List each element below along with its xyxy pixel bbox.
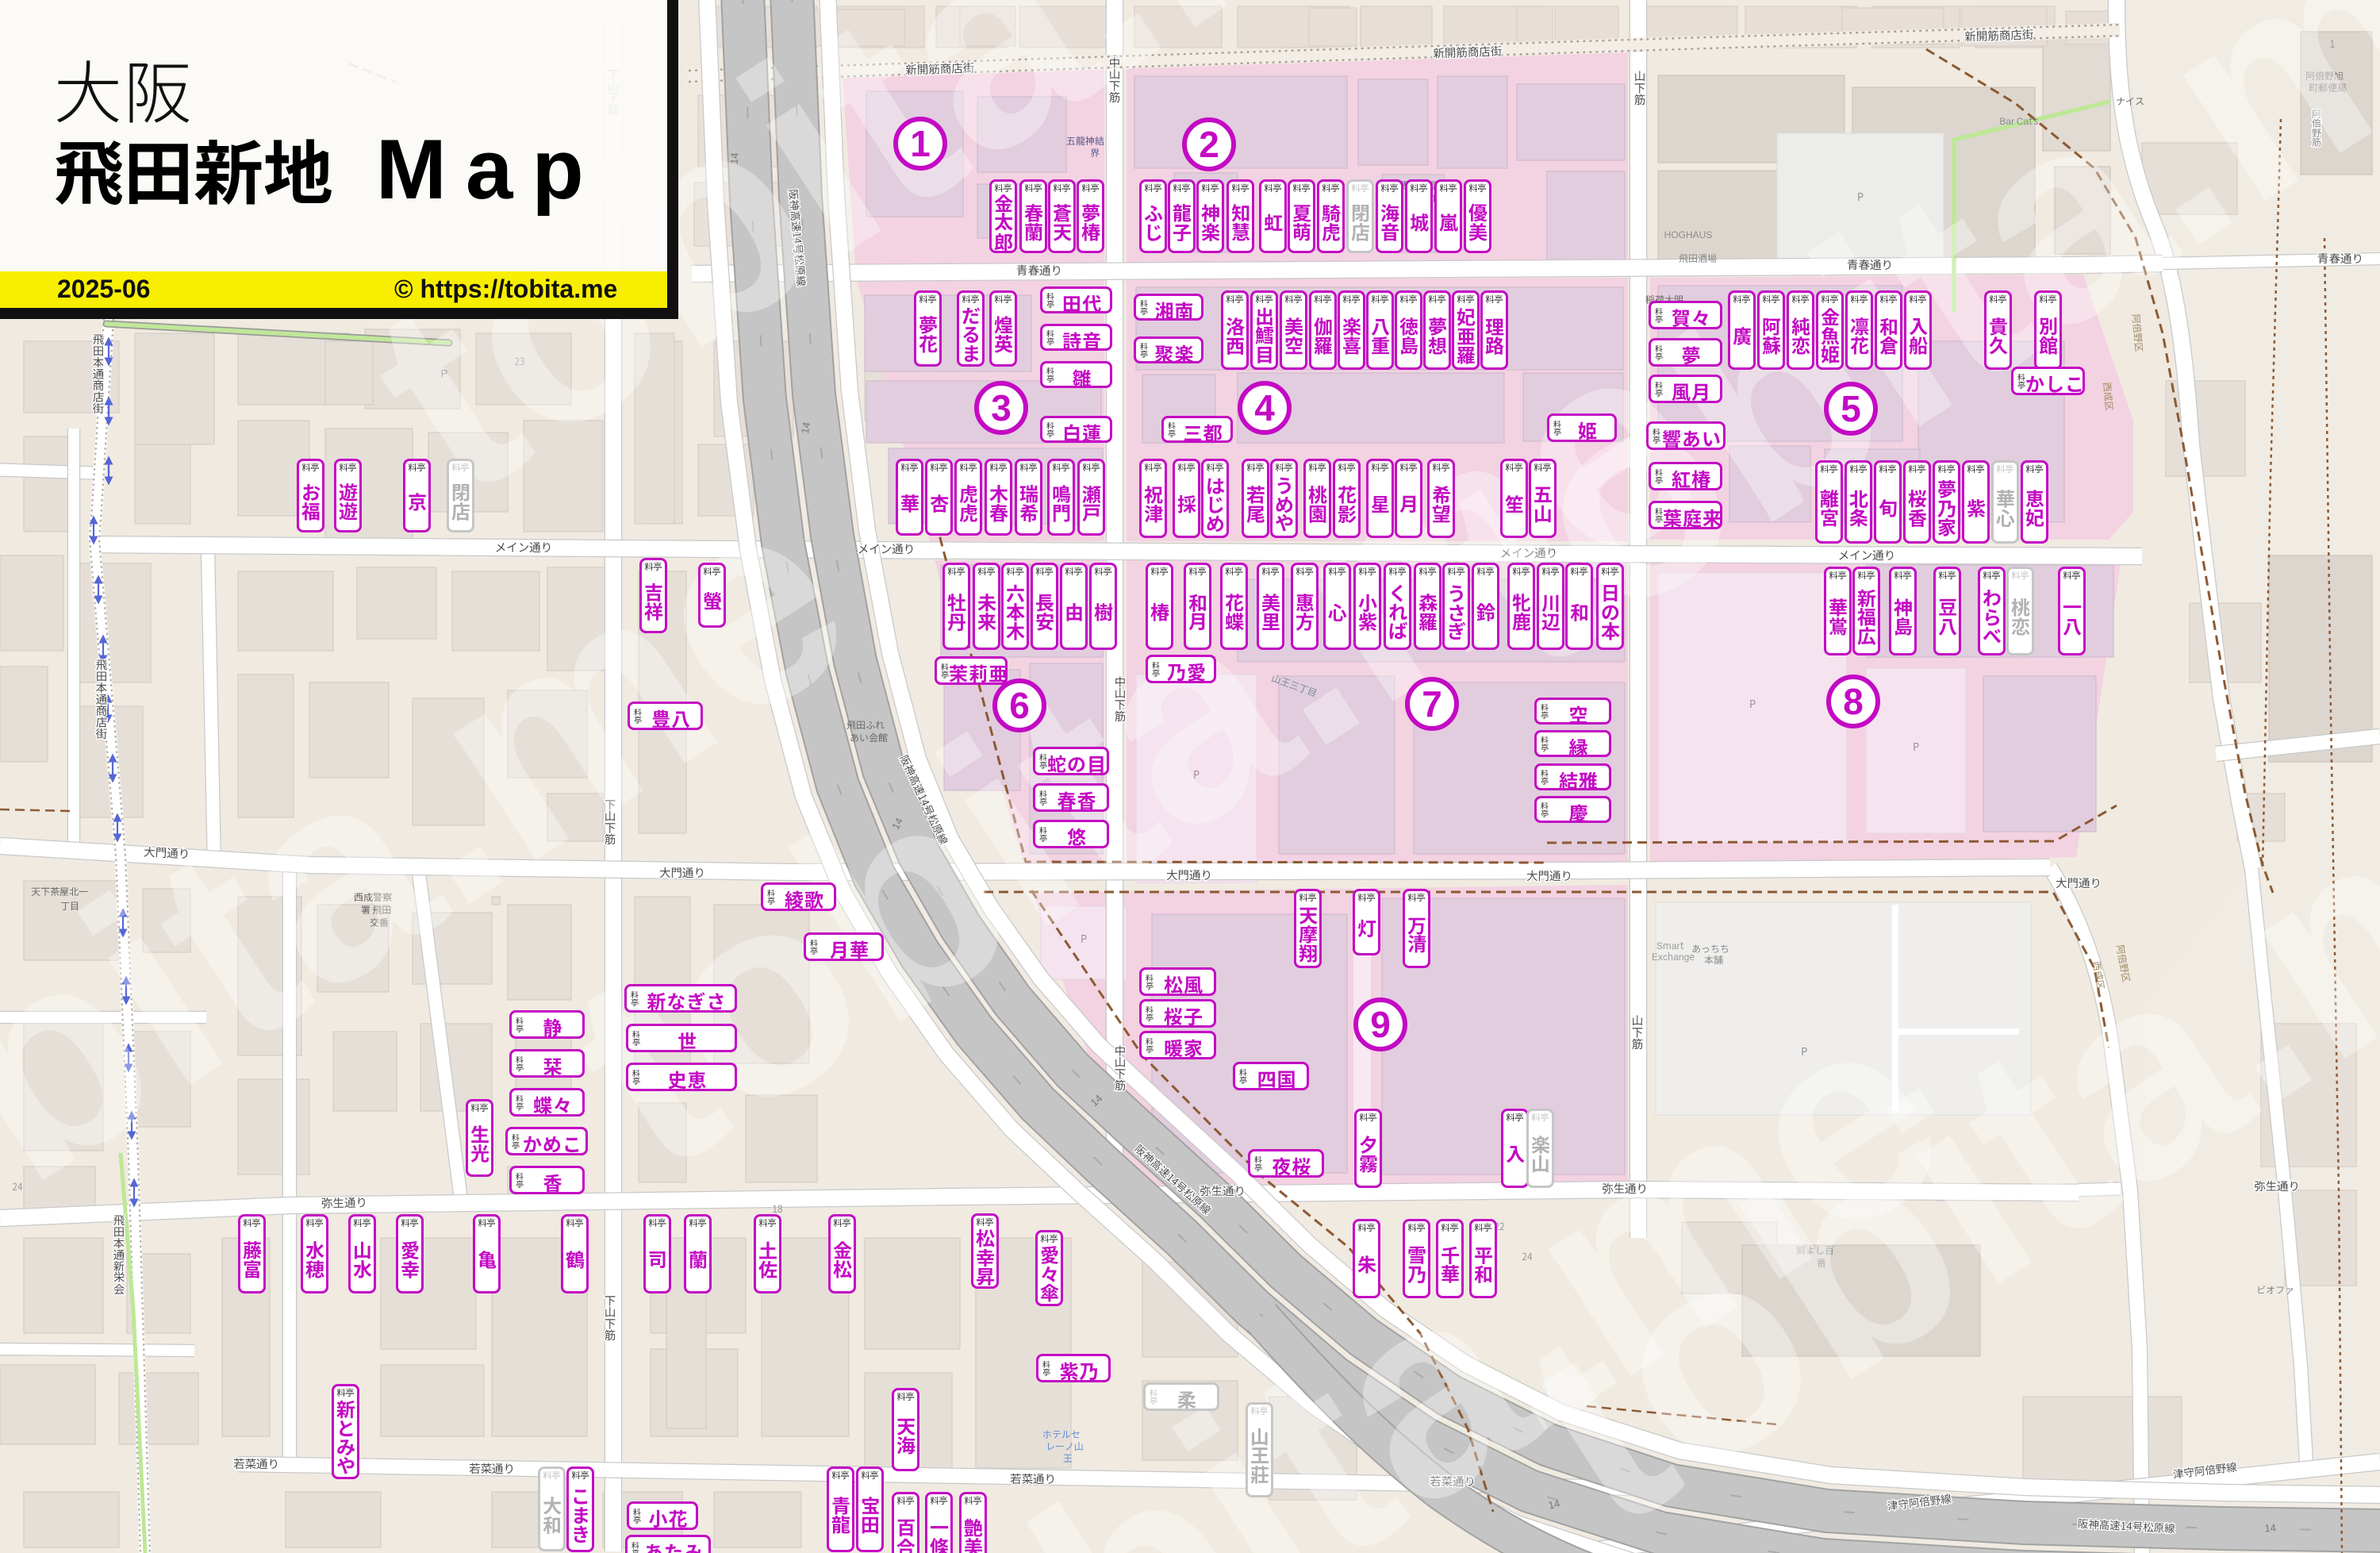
svg-text:弥生通り: 弥生通り — [1200, 1182, 1246, 1199]
svg-text:若菜通り: 若菜通り — [233, 1455, 279, 1472]
svg-text:P: P — [1913, 739, 1919, 754]
svg-text:ビオファ: ビオファ — [2256, 1283, 2294, 1297]
svg-text:新開筋商店街: 新開筋商店街 — [1964, 25, 2034, 44]
svg-text:飛田本通新栄会: 飛田本通新栄会 — [111, 1213, 128, 1295]
svg-text:14: 14 — [2264, 1522, 2276, 1535]
svg-text:山下筋: 山下筋 — [1632, 70, 1649, 106]
svg-text:弥生通り: 弥生通り — [321, 1194, 367, 1211]
svg-text:飛田本通商店街: 飛田本通商店街 — [94, 658, 110, 740]
svg-text:大門通り: 大門通り — [2056, 875, 2102, 891]
svg-text:14: 14 — [799, 421, 812, 435]
svg-text:大門通り: 大門通り — [1526, 867, 1572, 884]
svg-text:下山下筋: 下山下筋 — [602, 1294, 619, 1341]
svg-text:青春通り: 青春通り — [1016, 262, 1062, 279]
svg-text:メイン通り: メイン通り — [858, 540, 916, 557]
svg-text:HOGHAUS: HOGHAUS — [1664, 228, 1713, 241]
svg-text:中山下筋: 中山下筋 — [1112, 1044, 1129, 1091]
svg-text:本舗: 本舗 — [1703, 953, 1723, 967]
svg-text:Exchange: Exchange — [1652, 950, 1695, 963]
svg-text:P: P — [1749, 696, 1756, 711]
svg-text:新開筋商店街: 新開筋商店街 — [1433, 42, 1503, 61]
svg-text:青春通り: 青春通り — [2317, 250, 2363, 267]
svg-text:若菜通り: 若菜通り — [469, 1460, 515, 1477]
svg-text:西成区: 西成区 — [2100, 382, 2116, 411]
svg-text:山下筋: 山下筋 — [1630, 1014, 1646, 1050]
svg-text:飛田本通商店街: 飛田本通商店街 — [90, 333, 107, 414]
svg-text:メイン通り: メイン通り — [1838, 547, 1896, 563]
